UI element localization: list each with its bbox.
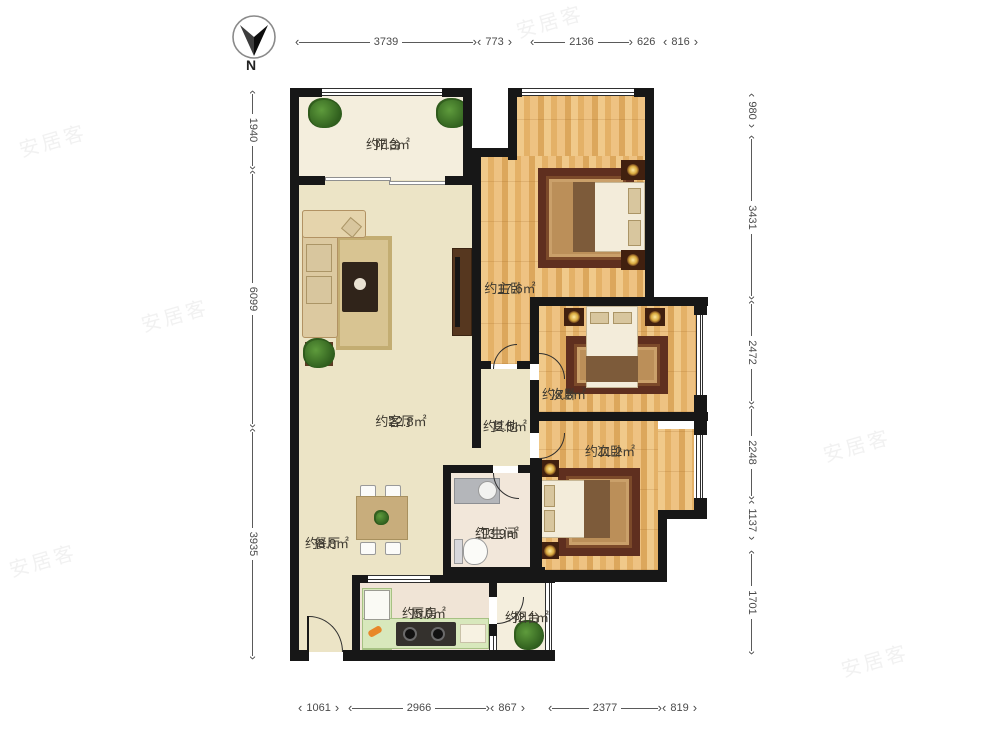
wall xyxy=(508,88,517,160)
wall xyxy=(290,88,299,661)
entry-door-leaf xyxy=(307,616,309,652)
room-area: 约17.6㎡ xyxy=(484,281,535,298)
dining-chair xyxy=(360,542,376,555)
sofa-pillow xyxy=(306,276,332,304)
window xyxy=(322,88,442,96)
dim-right-1: ‹980› xyxy=(745,93,759,135)
bedroom3-pillow xyxy=(544,485,555,507)
wall xyxy=(530,297,708,306)
watermark: 安居客 xyxy=(837,636,911,683)
watermark: 安居客 xyxy=(15,116,89,163)
master-bed-pillow xyxy=(628,188,641,214)
wall xyxy=(530,458,542,575)
wall xyxy=(343,650,555,661)
wall xyxy=(443,465,451,575)
wall xyxy=(517,361,530,369)
dim-bottom-3: ‹867› xyxy=(490,701,532,715)
dining-chair xyxy=(385,542,401,555)
room-area: 约3.9㎡ xyxy=(475,526,519,543)
balcony-plant xyxy=(308,98,342,128)
sliding-door xyxy=(325,177,391,181)
stove-burner xyxy=(431,627,445,641)
toilet-tank xyxy=(454,539,463,564)
nightstand-lamp xyxy=(540,542,559,559)
dim-top-4: 626 xyxy=(633,35,663,49)
bedroom2-pillow xyxy=(613,312,632,324)
dim-top-2: ‹773› xyxy=(477,35,515,49)
coffee-table-plate xyxy=(354,278,366,290)
corridor-passage-floor xyxy=(451,448,530,466)
sofa-pillow xyxy=(306,244,332,272)
nightstand-lamp xyxy=(621,250,645,270)
watermark: 安居客 xyxy=(819,421,893,468)
bedroom2-blanket xyxy=(586,356,638,382)
potted-plant xyxy=(303,338,335,368)
dim-right-3: ‹2472› xyxy=(745,300,759,405)
room-area: 约2.5㎡ xyxy=(483,419,527,436)
window xyxy=(368,575,430,583)
cutting-board xyxy=(460,624,486,643)
watermark: 安居客 xyxy=(5,536,79,583)
dim-bottom-5: ‹819› xyxy=(662,701,703,715)
compass-north-icon xyxy=(228,10,280,62)
wall xyxy=(472,361,491,369)
dim-bottom-4: ‹2377› xyxy=(548,701,662,715)
dim-left-2: ‹6099› xyxy=(246,170,260,428)
table-plant xyxy=(374,510,389,525)
wall xyxy=(543,575,555,583)
dim-right-2: ‹3431› xyxy=(745,135,759,300)
wall xyxy=(489,624,497,636)
nightstand-lamp xyxy=(540,460,559,477)
dim-top-1: ‹3739› xyxy=(295,35,477,49)
fridge xyxy=(364,590,390,620)
wall xyxy=(530,412,708,421)
window xyxy=(696,435,703,498)
wall xyxy=(463,88,472,183)
dim-top-5: ‹816› xyxy=(663,35,700,49)
wall xyxy=(645,88,654,306)
room-area: 约11.2㎡ xyxy=(585,444,635,461)
floor-plan: N 安居客 安居客 安居客 安居客 安居客 安居客 ‹3739› ‹773› ‹… xyxy=(0,0,1000,750)
wall xyxy=(445,176,472,185)
wall xyxy=(508,88,522,97)
dim-bottom-2: ‹2966› xyxy=(348,701,490,715)
bedroom3-blanket xyxy=(584,480,610,538)
dim-left-3: ‹3935› xyxy=(246,428,260,660)
wall xyxy=(443,567,545,575)
room-area: 约5.0㎡ xyxy=(402,606,446,623)
wall xyxy=(430,575,497,583)
room-bedroom3-bay-floor xyxy=(658,429,694,512)
wall xyxy=(290,88,322,97)
dim-top-3: ‹2136› xyxy=(530,35,633,49)
master-bed-pillow xyxy=(628,220,641,246)
stove-burner xyxy=(403,627,417,641)
dim-right-4: ‹2248› xyxy=(745,405,759,500)
wall xyxy=(530,306,539,353)
dim-left-1: ‹1940› xyxy=(246,90,260,170)
sliding-door xyxy=(389,181,447,185)
room-area: 约8.8㎡ xyxy=(305,536,349,553)
window xyxy=(522,88,634,96)
watermark: 安居客 xyxy=(137,291,211,338)
bedroom2-pillow xyxy=(590,312,609,324)
wall xyxy=(694,421,707,435)
wall xyxy=(518,465,534,473)
tv-screen xyxy=(455,257,460,327)
nightstand-lamp xyxy=(645,308,665,326)
nightstand-lamp xyxy=(621,160,645,180)
wall xyxy=(352,575,360,661)
nightstand-lamp xyxy=(564,308,584,326)
room-area: 约2.1㎡ xyxy=(505,610,549,627)
dim-right-5: ‹1137› xyxy=(745,500,759,550)
bathroom-sink-basin xyxy=(478,481,497,500)
room-master-bedroom-bay-floor xyxy=(517,96,645,160)
wall xyxy=(472,148,481,448)
wall xyxy=(299,176,325,185)
bedroom3-pillow xyxy=(544,510,555,532)
room-other-corridor-floor xyxy=(481,369,530,449)
room-area: 约7.3㎡ xyxy=(366,137,410,154)
master-bed-blanket xyxy=(573,182,595,252)
wall xyxy=(694,297,707,315)
room-area: 约22.8㎡ xyxy=(375,414,426,431)
room-area: 约8.8㎡ xyxy=(542,387,586,404)
wall xyxy=(489,583,497,597)
window xyxy=(696,315,703,395)
dim-bottom-1: ‹1061› xyxy=(298,701,348,715)
wall xyxy=(530,421,539,433)
compass-n-label: N xyxy=(246,57,256,73)
dim-right-6: ‹1701› xyxy=(745,550,759,655)
